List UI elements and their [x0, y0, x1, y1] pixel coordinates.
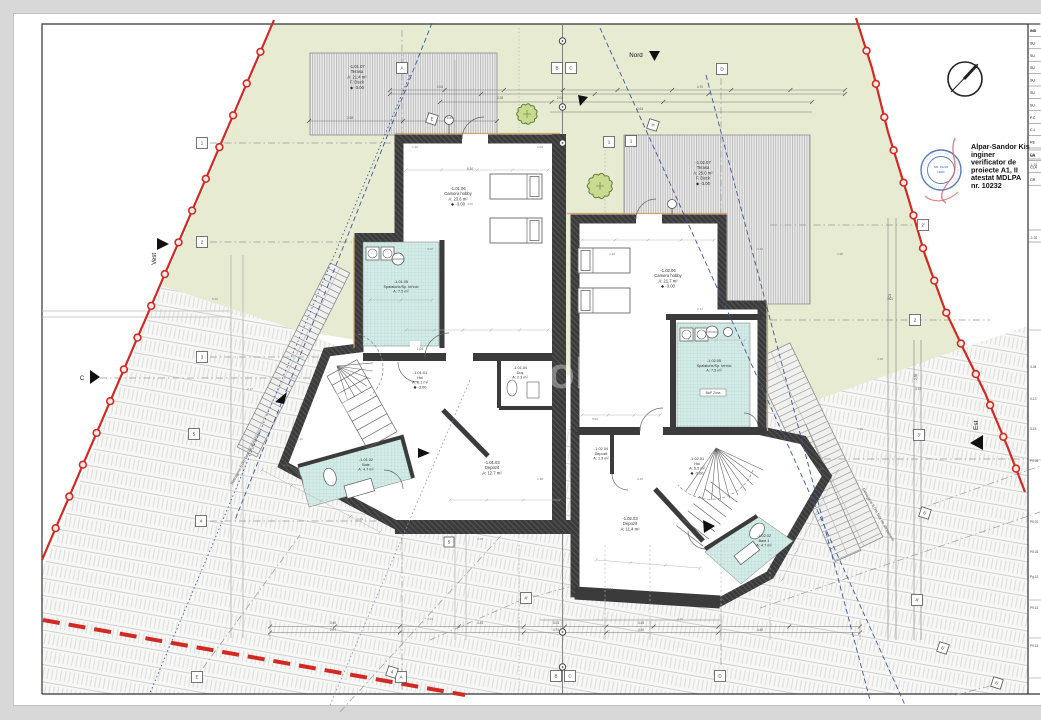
svg-text:1.98: 1.98	[837, 252, 843, 256]
svg-text:C.L: C.L	[1030, 128, 1036, 132]
svg-text:nr. 10232: nr. 10232	[971, 181, 1002, 190]
svg-text:3': 3'	[917, 433, 921, 438]
svg-text:1.98: 1.98	[537, 477, 543, 481]
svg-text:E: E	[431, 117, 434, 122]
svg-text:SU: SU	[1030, 66, 1035, 70]
svg-text:6': 6'	[995, 681, 998, 686]
svg-text:-1.01: -1.01	[1030, 163, 1037, 167]
svg-text:2.98: 2.98	[347, 116, 353, 120]
svg-text:4': 4'	[915, 598, 919, 603]
svg-text:3.40: 3.40	[330, 621, 336, 625]
svg-text:2.04: 2.04	[427, 617, 433, 621]
svg-text:Baie: Baie	[362, 463, 370, 467]
svg-text:P5.03: P5.03	[1030, 550, 1039, 554]
svg-text:2.04: 2.04	[557, 96, 563, 100]
svg-text:Pg.13: Pg.13	[1030, 575, 1039, 579]
svg-text:Dus: Dus	[517, 371, 524, 375]
svg-text:2': 2'	[921, 223, 925, 228]
svg-text:b: b	[320, 374, 352, 432]
svg-text:A: 7.5 m²: A: 7.5 m²	[706, 369, 722, 373]
svg-text:3.30: 3.30	[427, 247, 433, 251]
svg-text:-1.02: -1.02	[1030, 236, 1037, 240]
svg-text:4.45: 4.45	[638, 621, 644, 625]
svg-text:2.64: 2.64	[607, 587, 613, 591]
svg-text:1.46: 1.46	[609, 252, 615, 256]
svg-text:2.64: 2.64	[637, 107, 643, 111]
svg-text:Spalatorie/Sp. tehnic: Spalatorie/Sp. tehnic	[696, 364, 731, 368]
svg-text:P9.13: P9.13	[1030, 606, 1039, 610]
svg-text:◆ -3.00: ◆ -3.00	[451, 202, 466, 207]
svg-text:SU: SU	[1030, 91, 1035, 95]
svg-text:-1.01.02: -1.01.02	[359, 458, 373, 462]
svg-text:BioP Zona: BioP Zona	[706, 391, 721, 395]
svg-text:4.45: 4.45	[477, 621, 483, 625]
svg-text:2.17: 2.17	[697, 307, 703, 311]
svg-text:H: H	[651, 123, 654, 128]
svg-text:P.C: P.C	[1030, 116, 1036, 120]
svg-text:P0.04: P0.04	[1030, 459, 1039, 463]
svg-text:3-15: 3-15	[1030, 427, 1037, 431]
svg-text:A: A	[399, 675, 402, 680]
svg-text:2.38: 2.38	[914, 374, 918, 380]
svg-text:A: 12.7 m²: A: 12.7 m²	[482, 470, 502, 475]
svg-text:2.07: 2.07	[330, 628, 336, 632]
svg-text:3-04: 3-04	[1030, 365, 1037, 369]
svg-text:0-13: 0-13	[1030, 397, 1037, 401]
svg-text:5.40: 5.40	[447, 116, 453, 120]
svg-text:◆ -3.00: ◆ -3.00	[414, 384, 428, 389]
svg-text:SU: SU	[1030, 79, 1035, 83]
svg-text:Spalatorie/Sp. tehnic: Spalatorie/Sp. tehnic	[383, 285, 418, 289]
svg-text:0.42: 0.42	[637, 477, 643, 481]
svg-text:1.46: 1.46	[857, 427, 863, 431]
svg-text:A: 11.4 m²: A: 11.4 m²	[620, 526, 640, 531]
svg-text:3.18: 3.18	[477, 537, 483, 541]
svg-text:-1.02.02: -1.02.02	[757, 534, 771, 538]
svg-text:GR: GR	[1030, 178, 1036, 182]
svg-text:Baie 1: Baie 1	[759, 539, 770, 543]
svg-text:4.70: 4.70	[467, 202, 473, 206]
svg-text:Vest: Vest	[152, 253, 158, 265]
svg-text:A: 2.3 m²: A: 2.3 m²	[512, 376, 528, 380]
svg-text:2.04: 2.04	[437, 85, 443, 89]
svg-text:4': 4'	[524, 596, 528, 601]
svg-text:5.03: 5.03	[592, 417, 598, 421]
svg-text:P5.01: P5.01	[1030, 520, 1039, 524]
svg-text:A: 7.5 m²: A: 7.5 m²	[393, 290, 409, 294]
svg-text:5.03: 5.03	[212, 297, 218, 301]
svg-text:SU: SU	[1030, 41, 1035, 45]
svg-text:C: C	[80, 376, 85, 382]
svg-text:◆ -3.00: ◆ -3.00	[696, 181, 711, 186]
svg-text:3.18: 3.18	[877, 357, 883, 361]
svg-text:1.04: 1.04	[357, 517, 363, 521]
svg-text:A: 1.9 m²: A: 1.9 m²	[593, 457, 609, 461]
svg-text:-1.02.04: -1.02.04	[594, 447, 608, 451]
svg-text:-1.01.05: -1.01.05	[394, 280, 408, 284]
svg-text:4.40: 4.40	[757, 628, 763, 632]
svg-text:Est: Est	[973, 420, 980, 430]
svg-text:A: 4.7 m²: A: 4.7 m²	[756, 544, 772, 548]
svg-text:◆ -3.00: ◆ -3.00	[691, 470, 705, 475]
svg-text:2.28: 2.28	[497, 96, 503, 100]
svg-text:1.10: 1.10	[297, 437, 303, 441]
svg-text:SU: SU	[1030, 54, 1035, 58]
svg-text:A: 4.7 m²: A: 4.7 m²	[358, 468, 374, 472]
svg-text:◆ -3.00: ◆ -3.00	[661, 284, 676, 289]
svg-text:B: B	[555, 66, 558, 71]
svg-text:IND: IND	[1030, 29, 1037, 33]
svg-text:B: B	[554, 674, 557, 679]
svg-text:RE: RE	[1030, 141, 1036, 145]
svg-text:2.04: 2.04	[537, 145, 543, 149]
svg-text:-1.02.05: -1.02.05	[707, 359, 721, 363]
svg-text:4.70: 4.70	[697, 85, 703, 89]
svg-text:P9.15: P9.15	[1030, 644, 1039, 648]
svg-text:4.50: 4.50	[638, 628, 644, 632]
svg-text:3.18: 3.18	[915, 387, 921, 391]
svg-text:4.70: 4.70	[677, 617, 683, 621]
svg-text:-1.01.04: -1.01.04	[513, 366, 527, 370]
svg-text:◆ -3.00: ◆ -3.00	[350, 85, 365, 90]
svg-text:Depozit: Depozit	[595, 452, 609, 456]
svg-text:VERIF: VERIF	[937, 170, 945, 174]
svg-text:6': 6'	[941, 646, 944, 651]
svg-text:3.30: 3.30	[817, 467, 823, 471]
svg-text:1.10: 1.10	[412, 145, 418, 149]
svg-text:SU: SU	[1030, 103, 1035, 107]
svg-text:7.01: 7.01	[888, 294, 892, 300]
svg-text:5.03: 5.03	[553, 621, 559, 625]
svg-text:A: A	[400, 66, 403, 71]
svg-text:NR.: NR.	[1030, 154, 1036, 158]
svg-text:Nord: Nord	[629, 52, 643, 59]
svg-text:NR. 10232: NR. 10232	[934, 165, 949, 169]
svg-text:1.04: 1.04	[417, 347, 423, 351]
svg-text:6': 6'	[923, 511, 926, 516]
svg-text:E: E	[195, 675, 198, 680]
svg-text:0.42: 0.42	[757, 247, 763, 251]
svg-text:2.17: 2.17	[247, 387, 253, 391]
svg-text:5.30: 5.30	[467, 167, 473, 171]
svg-text:ol: ol	[548, 349, 587, 398]
svg-text:4.70: 4.70	[553, 628, 559, 632]
